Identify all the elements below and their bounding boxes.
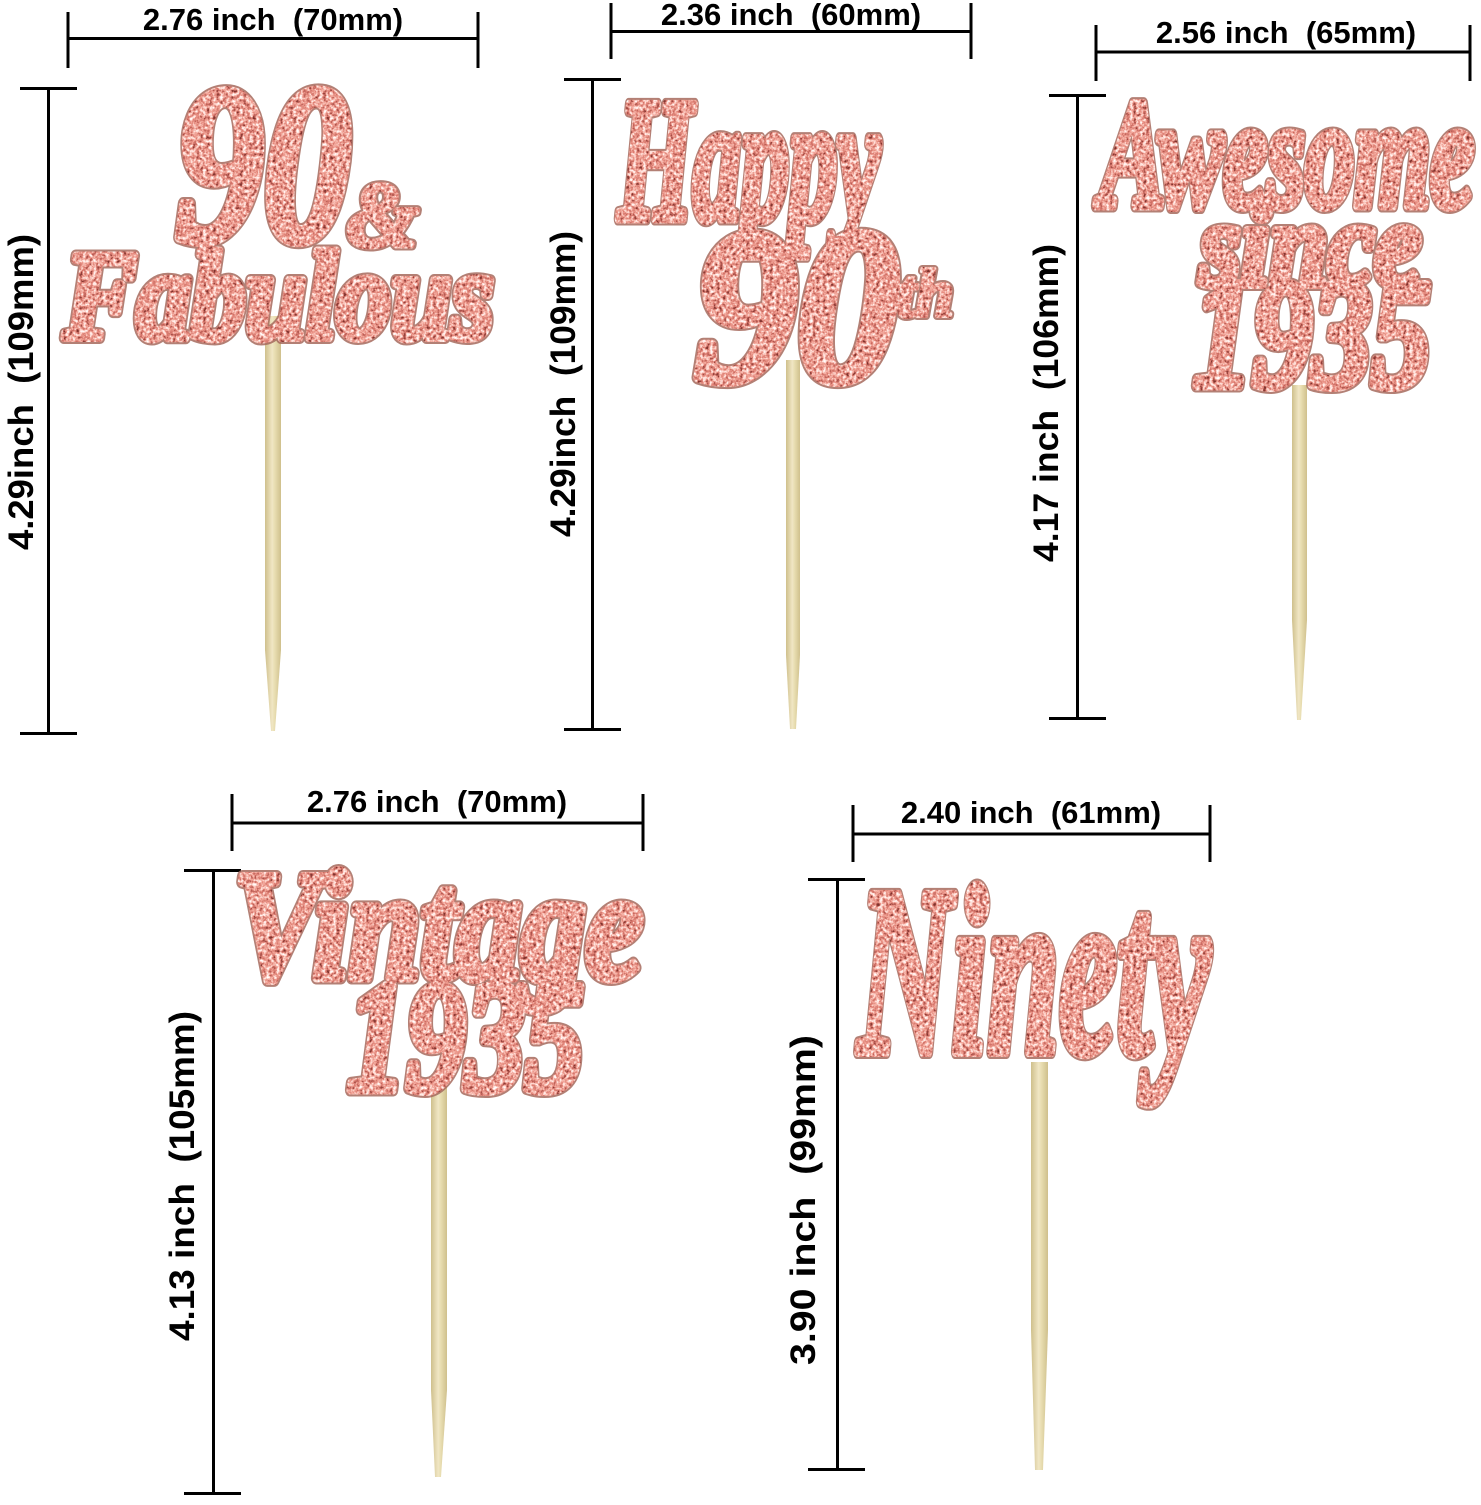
svg-text:4.13 inch (105mm): 4.13 inch (105mm) [163,1011,202,1341]
svg-text:2.56 inch (65mm): 2.56 inch (65mm) [1156,15,1416,50]
svg-text:4.29inch (109mm): 4.29inch (109mm) [2,234,41,550]
svg-text:90: 90 [695,184,899,428]
svg-text:2.76 inch (70mm): 2.76 inch (70mm) [143,2,403,37]
svg-text:Fabulous: Fabulous [63,227,494,366]
svg-text:2.76 inch (70mm): 2.76 inch (70mm) [307,784,567,819]
svg-text:1935: 1935 [1193,248,1431,420]
svg-text:4.17 inch (106mm): 4.17 inch (106mm) [1027,244,1066,562]
svg-text:th: th [897,255,954,331]
svg-text:Ninety: Ninety [856,838,1210,1104]
svg-text:3.90 inch (99mm): 3.90 inch (99mm) [784,1035,823,1365]
svg-text:1935: 1935 [347,950,584,1125]
svg-text:2.36 inch (60mm): 2.36 inch (60mm) [661,0,921,32]
svg-text:2.40 inch (61mm): 2.40 inch (61mm) [901,795,1161,830]
svg-text:4.29inch (109mm): 4.29inch (109mm) [544,231,583,537]
